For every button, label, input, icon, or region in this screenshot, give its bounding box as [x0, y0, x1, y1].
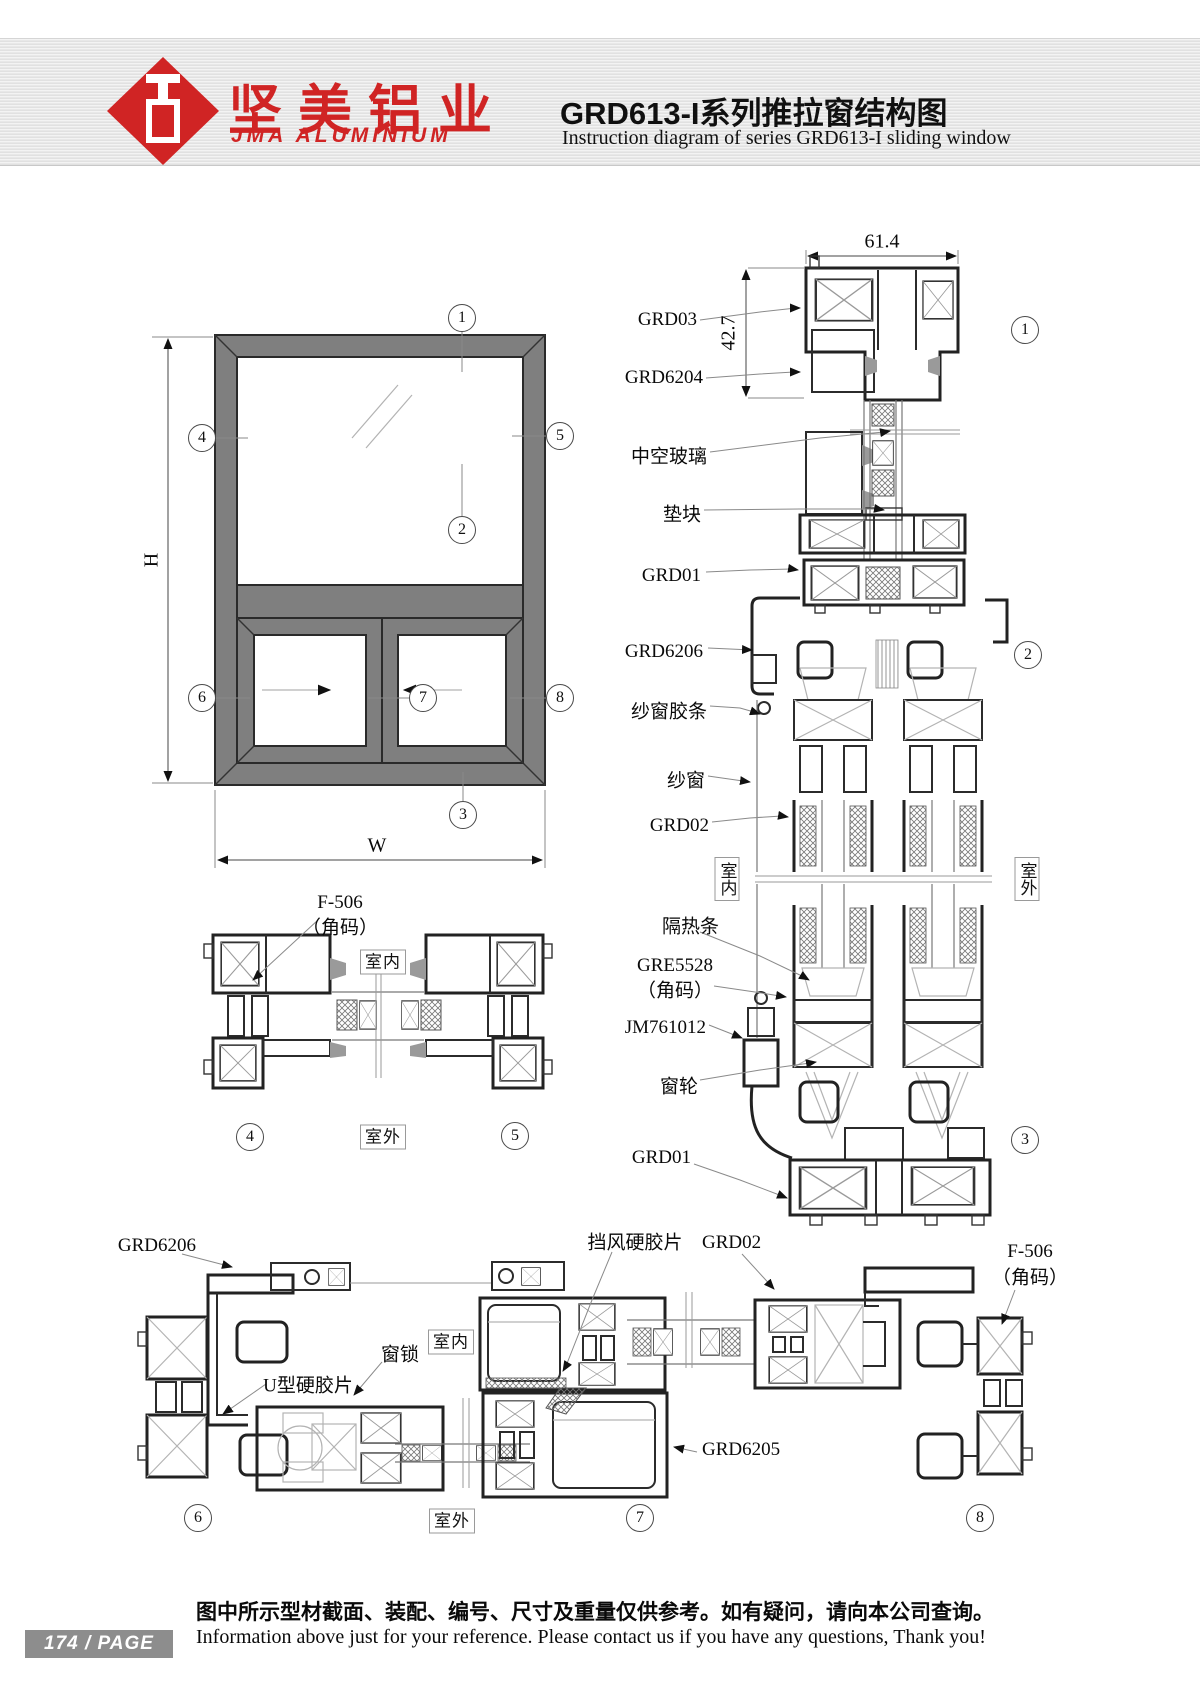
callout-8: 8: [546, 684, 574, 712]
label-grd01-bottom: GRD01: [632, 1147, 691, 1169]
label-u-strip: U型硬胶片: [263, 1371, 353, 1398]
label-grd03: GRD03: [638, 309, 697, 331]
label-jm761012: JM761012: [625, 1017, 706, 1039]
label-gre5528: GRE5528: [637, 955, 713, 977]
jma-logo-icon: [107, 57, 219, 165]
sill-section-grd01: [790, 1128, 990, 1225]
glass-symbol: [352, 385, 412, 448]
sash-bottom-section: [794, 884, 872, 1138]
callout-4: 4: [188, 424, 216, 452]
room-outdoor-45: 室外: [360, 1125, 406, 1150]
callout-2b: 2: [1014, 641, 1042, 669]
jm761012-profile: [744, 992, 792, 1158]
catalog-page: 坚美铝业 JMA ALUMINIUM GRD613-I系列推拉窗结构图 Inst…: [0, 0, 1200, 1697]
label-grd02-b: GRD02: [702, 1232, 761, 1254]
section-45-drawing: [204, 920, 552, 1088]
label-f506-sub: （角码）: [302, 913, 378, 940]
footer-note-cn: 图中所示型材截面、装配、编号、尺寸及重量仅供参考。如有疑问，请向本公司查询。: [196, 1596, 994, 1626]
label-insulating-glass: 中空玻璃: [631, 442, 707, 469]
label-grd6206-b: GRD6206: [118, 1235, 196, 1257]
callout-6b: 6: [184, 1504, 212, 1532]
callout-6: 6: [188, 684, 216, 712]
bottom-adapter-rail: [208, 1262, 564, 1293]
logo-text-en: JMA ALUMINIUM: [231, 124, 452, 148]
jamb-section-left: [204, 935, 346, 1088]
room-outdoor-right: 室外: [1015, 857, 1040, 901]
label-screen: 纱窗: [667, 766, 705, 793]
callout-3b: 3: [1011, 1126, 1039, 1154]
label-grd6206-r: GRD6206: [625, 641, 703, 663]
dim-h-label: H: [141, 553, 164, 567]
label-setting-block: 垫块: [663, 500, 701, 527]
dim-42-7: [746, 268, 804, 398]
room-outdoor-bottom: 室外: [429, 1509, 475, 1534]
section-right-leaders: [694, 308, 890, 1198]
label-grd02-r: GRD02: [650, 815, 709, 837]
bottom-left-jamb: [138, 1317, 207, 1477]
callout-2: 2: [448, 516, 476, 544]
label-grd6205: GRD6205: [702, 1439, 780, 1461]
sash-top-section: [794, 642, 872, 874]
bottom-glass-indoor: [627, 1292, 755, 1368]
transom-section-grd01: [800, 515, 965, 613]
dim-42-7-label: 42.7: [718, 316, 741, 351]
callout-1b: 1: [1011, 316, 1039, 344]
bottom-sash-indoor-right: [755, 1300, 900, 1388]
callout-7: 7: [409, 684, 437, 712]
label-f506: F-506: [317, 892, 362, 914]
section-right-drawing: [694, 250, 1008, 1225]
dim-61-4-label: 61.4: [865, 231, 900, 254]
page-number-badge: 174 / PAGE: [25, 1630, 173, 1658]
label-f506-b-sub: （角码）: [992, 1263, 1068, 1290]
dim-w-label: W: [368, 835, 387, 858]
footer-note-en: Information above just for your referenc…: [196, 1626, 986, 1649]
callout-8b: 8: [966, 1504, 994, 1532]
callout-4b: 4: [236, 1123, 264, 1151]
label-screen-gasket: 纱窗胶条: [631, 697, 707, 724]
label-wind-strip: 挡风硬胶片: [587, 1228, 682, 1255]
page-drawing-layer: [0, 0, 1200, 1697]
label-grd01-top: GRD01: [642, 565, 701, 587]
label-grd6204: GRD6204: [625, 367, 703, 389]
elevation-drawing: [152, 332, 546, 868]
room-indoor-bottom: 室内: [428, 1330, 474, 1355]
room-indoor-45: 室内: [360, 950, 406, 975]
callout-3: 3: [449, 801, 477, 829]
callout-5: 5: [546, 422, 574, 450]
label-thermal-break: 隔热条: [662, 912, 719, 939]
callout-5b: 5: [501, 1122, 529, 1150]
label-f506-b: F-506: [1007, 1241, 1052, 1263]
label-roller: 窗轮: [660, 1072, 698, 1099]
callout-7b: 7: [626, 1504, 654, 1532]
label-gre5528-sub: （角码）: [637, 976, 713, 1003]
room-indoor-right: 室内: [715, 857, 740, 901]
callout-1: 1: [448, 304, 476, 332]
label-window-lock: 窗锁: [381, 1340, 419, 1367]
page-subtitle: Instruction diagram of series GRD613-I s…: [562, 127, 1011, 150]
